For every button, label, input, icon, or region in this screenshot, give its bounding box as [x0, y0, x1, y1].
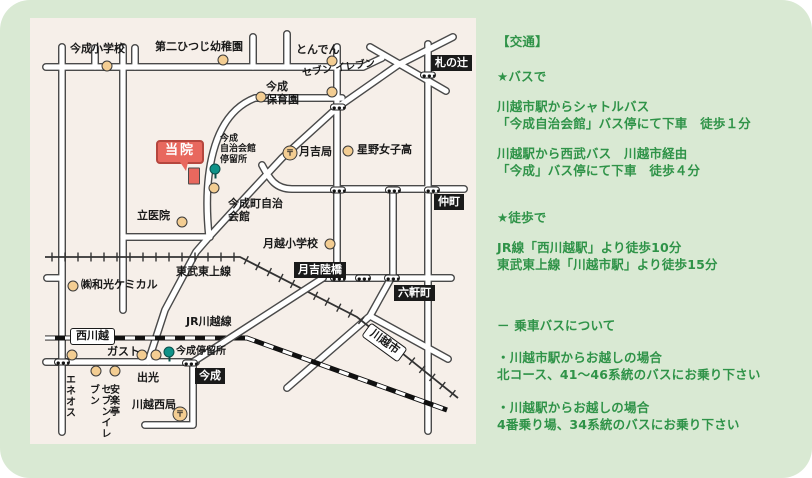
label-tonden: とんでん: [296, 44, 339, 57]
poi-imanari-elementary: [102, 61, 113, 72]
signal-nakacho-2: [385, 187, 401, 194]
poi-seven-eleven-north: [327, 87, 338, 98]
label-imanari: 今成: [195, 368, 225, 384]
clinic-building: [188, 168, 200, 185]
poi-seven-eleven-south: [91, 366, 102, 377]
label-daini-hitsuji-kindergarten: 第二ひつじ幼稚園: [155, 41, 243, 54]
label-imanari-elementary: 今成小学校: [70, 43, 125, 56]
label-rokkencho: 六軒町: [394, 285, 435, 301]
signal-imanari: [182, 360, 198, 367]
label-tachi-clinic: 立医院: [137, 210, 170, 223]
label-kawagoe-shi-station: 川越市: [361, 322, 407, 362]
label-imanari-hoikuen: 今成 保育園: [266, 81, 299, 106]
poi-hoshino-girls-high: [343, 146, 354, 157]
label-wako-chemical: ㈱和光ケミカル: [81, 279, 158, 292]
label-tsukiyoshi-post-office: 月吉局: [299, 146, 332, 159]
label-tsukigoe-elementary: 月越小学校: [263, 238, 318, 251]
poi-idemitsu: [151, 350, 162, 361]
poi-imanari-cho-hall: [209, 183, 220, 194]
label-tsukiyoshi-overpass: 月吉陸橋: [294, 262, 346, 278]
signal-rokkencho-2: [355, 275, 371, 282]
bus-info-kawagoeshi: ・川越市駅からお越しの場合 北コース、41～46系統のバスにお乗り下さい: [497, 349, 799, 383]
bus-route-shuttle: 川越市駅からシャトルバス 「今成自治会館」バス停にて下車 徒歩１分: [497, 98, 799, 132]
signal-nishi-kawagoe: [54, 359, 70, 366]
poi-anrakutei: [110, 366, 121, 377]
signal-rokkencho-3: [384, 275, 400, 282]
signal-nakacho-1: [330, 187, 346, 194]
access-map: 〒〒今成小学校第二ひつじ幼稚園とんでん札の辻今成 保育園セブン イレブン月吉局星…: [30, 18, 476, 444]
signal-tonden-diagonal: [330, 104, 346, 111]
walk-section-heading: ★徒歩で: [497, 209, 799, 226]
label-hoshino-girls-high: 星野女子高: [357, 144, 412, 157]
label-jr-kawagoe-line: JR川越線: [186, 316, 232, 329]
bus-stop-imanari: [164, 347, 175, 358]
bus-route-seibu: 川越駅から西武バス 川越市経由 「今成」バス停にて下車 徒歩４分: [497, 145, 799, 179]
poi-daini-hitsuji: [218, 55, 229, 66]
label-bus-stop-imanari: 今成停留所: [176, 346, 226, 358]
label-eneos: エネオス: [63, 374, 75, 418]
label-nakacho: 仲町: [434, 194, 464, 210]
label-gasto: ガスト: [107, 346, 140, 359]
poi-tachi-clinic: [177, 217, 188, 228]
transport-paragraphs: 【交通】★バスで川越市駅からシャトルバス 「今成自治会館」バス停にて下車 徒歩１…: [497, 33, 799, 433]
bus-info-kawagoe: ・川越駅からお越しの場合 4番乗り場、34系統のバスにお乗り下さい: [497, 399, 799, 433]
label-bus-stop-imanari-jichikaikan: 今成 自治会館 停留所: [220, 134, 256, 165]
access-map-page: 〒〒今成小学校第二ひつじ幼稚園とんでん札の辻今成 保育園セブン イレブン月吉局星…: [0, 0, 812, 478]
signal-fudanotsuji: [420, 72, 436, 79]
label-fudanotsuji: 札の辻: [431, 55, 472, 71]
post-office-tsukiyoshi: 〒: [283, 146, 298, 161]
poi-imanari-hoikuen: [256, 92, 267, 103]
poi-tsukigoe-elementary: [325, 239, 336, 250]
signal-nakacho-3: [424, 187, 440, 194]
label-clinic: 当院: [156, 140, 204, 164]
label-seven-eleven-north: セブン イレブン: [302, 58, 376, 80]
label-anrakutei: 安楽亭: [107, 384, 119, 417]
bus-info-heading: － 乗車バスについて: [497, 317, 799, 334]
poi-wako-chemical: [68, 281, 79, 292]
transport-info-panel: 【交通】★バスで川越市駅からシャトルバス 「今成自治会館」バス停にて下車 徒歩１…: [497, 33, 799, 433]
bus-section-heading: ★バスで: [497, 68, 799, 85]
bus-stop-imanari-jichikaikan: [210, 164, 221, 175]
label-idemitsu: 出光: [137, 372, 159, 385]
map-overlay: 〒〒今成小学校第二ひつじ幼稚園とんでん札の辻今成 保育園セブン イレブン月吉局星…: [30, 18, 476, 444]
label-kawagoe-nishi-post-office: 川越西局: [132, 399, 176, 412]
transport-heading: 【交通】: [497, 33, 799, 50]
label-tobu-tojo-line: 東武東上線: [176, 266, 231, 279]
walk-routes: JR線「西川越駅」より徒歩10分 東武東上線「川越市駅」より徒歩15分: [497, 239, 799, 273]
label-imanari-cho-hall: 今成町自治 会館: [228, 198, 283, 223]
label-nishi-kawagoe-station: 西川越: [70, 328, 115, 345]
